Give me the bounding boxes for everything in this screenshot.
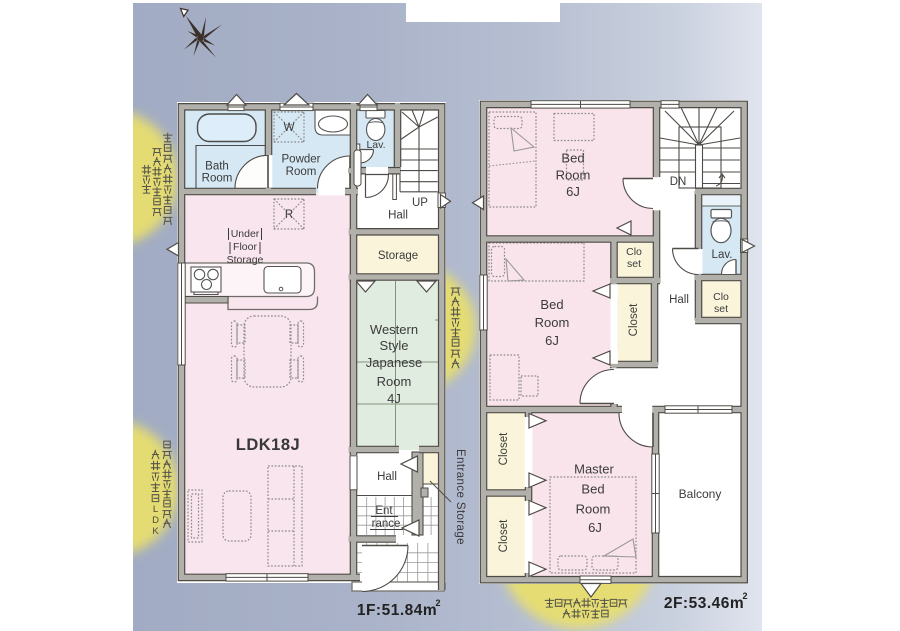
svg-text:Closet: Closet xyxy=(628,303,640,336)
svg-text:Style: Style xyxy=(380,338,409,353)
svg-text:Japanese: Japanese xyxy=(366,355,422,370)
svg-text:D: D xyxy=(152,515,159,526)
svg-text:4J: 4J xyxy=(387,391,401,406)
svg-text:Master: Master xyxy=(574,462,614,477)
svg-text:R: R xyxy=(285,209,293,221)
svg-text:6J: 6J xyxy=(588,520,602,535)
svg-text:Clo: Clo xyxy=(713,291,729,303)
svg-text:Entrance Storage: Entrance Storage xyxy=(454,449,466,545)
svg-text:Lav.: Lav. xyxy=(712,249,733,261)
svg-text:Hall: Hall xyxy=(669,294,689,306)
svg-text:Closet: Closet xyxy=(498,519,510,552)
svg-text:W: W xyxy=(284,122,295,134)
svg-text:Bed: Bed xyxy=(540,297,563,312)
svg-text:Bath: Bath xyxy=(205,161,229,173)
svg-text:Room: Room xyxy=(286,166,317,178)
svg-text:Room: Room xyxy=(377,374,412,389)
svg-text:Room: Room xyxy=(202,173,233,185)
svg-text:Under: Under xyxy=(231,228,260,240)
svg-text:rance: rance xyxy=(372,518,401,530)
svg-text:Hall: Hall xyxy=(377,471,397,483)
svg-text:Room: Room xyxy=(535,315,570,330)
svg-text:Room: Room xyxy=(576,502,611,517)
svg-text:Storage: Storage xyxy=(227,254,264,266)
svg-text:DN: DN xyxy=(670,176,687,188)
svg-text:Ent: Ent xyxy=(375,505,393,517)
svg-text:UP: UP xyxy=(412,197,428,209)
svg-text:Western: Western xyxy=(370,322,418,337)
svg-text:set: set xyxy=(627,258,641,270)
svg-text:Powder: Powder xyxy=(282,154,321,166)
svg-text:Room: Room xyxy=(556,168,591,183)
svg-text:Hall: Hall xyxy=(388,210,408,222)
svg-text:Floor: Floor xyxy=(233,241,257,253)
svg-text:2F:53.46m: 2F:53.46m xyxy=(664,595,744,612)
svg-text:Bed: Bed xyxy=(561,151,584,166)
svg-text:Balcony: Balcony xyxy=(679,487,722,501)
svg-text:LDK18J: LDK18J xyxy=(236,436,300,454)
svg-text:Bed: Bed xyxy=(581,482,604,497)
svg-text:6J: 6J xyxy=(545,333,559,348)
svg-text:Storage: Storage xyxy=(378,250,418,262)
svg-text:1F:51.84m: 1F:51.84m xyxy=(357,602,437,619)
svg-text:6J: 6J xyxy=(566,184,580,199)
svg-text:set: set xyxy=(714,303,728,315)
svg-text:Lav.: Lav. xyxy=(366,139,385,151)
svg-text:Clo: Clo xyxy=(626,246,642,258)
svg-text:Closet: Closet xyxy=(498,432,510,465)
svg-text:2: 2 xyxy=(435,598,440,608)
svg-text:2: 2 xyxy=(742,591,747,601)
svg-text:L: L xyxy=(153,504,158,515)
svg-text:K: K xyxy=(152,526,159,537)
